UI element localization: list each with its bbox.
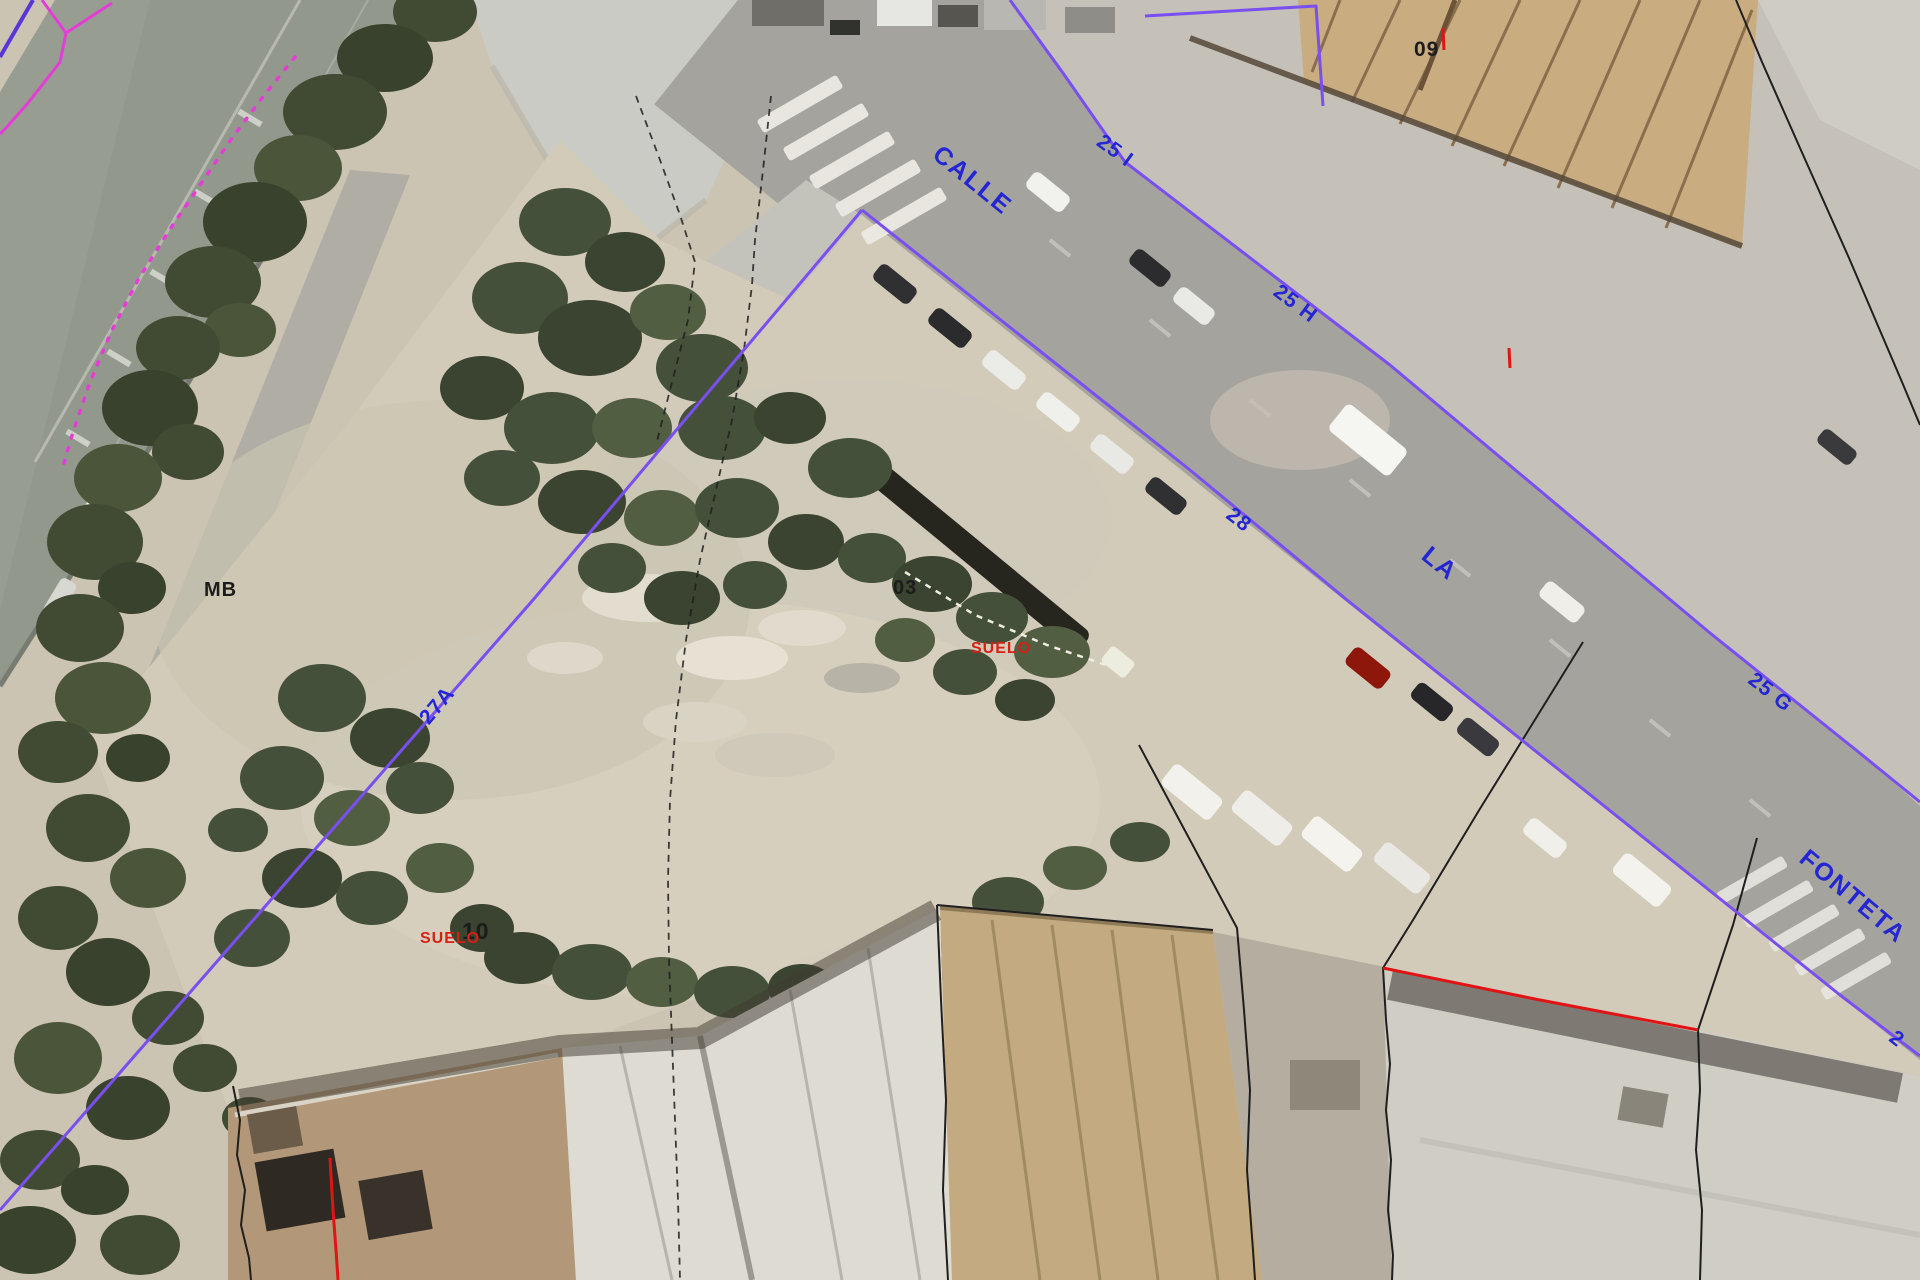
black-dashed-lines xyxy=(636,96,771,1280)
building-label-mb: MB xyxy=(204,579,237,602)
map-canvas[interactable]: CALLE LA FONTETA 25 I 25 H 28 25 G 27A 2… xyxy=(0,0,1920,1280)
red-boundary-line xyxy=(1383,968,1698,1030)
cadastral-overlay xyxy=(0,0,1920,1280)
building-label-03: 03 xyxy=(893,577,917,600)
black-solid-lines xyxy=(233,0,1920,1280)
magenta-lines xyxy=(0,0,295,470)
landuse-label-suelo-b: SUELO xyxy=(420,930,480,948)
parcel-corner-top xyxy=(1145,6,1323,106)
building-label-09: 09 xyxy=(1414,38,1439,62)
red-tick-09 xyxy=(1443,28,1444,50)
landuse-label-suelo-a: SUELO xyxy=(971,640,1031,658)
red-tick-east xyxy=(1509,348,1510,368)
parcel-line-north xyxy=(1010,0,1920,802)
blue-corner-line xyxy=(0,0,33,57)
parcel-line-south xyxy=(862,210,1920,1056)
